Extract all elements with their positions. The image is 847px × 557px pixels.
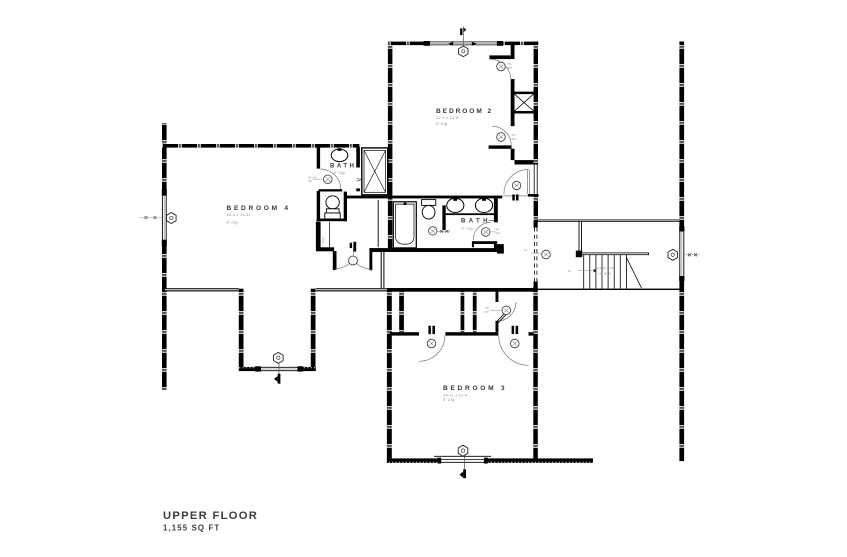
svg-text:linen: linen: [321, 236, 325, 243]
svg-text:8' Clg: 8' Clg: [334, 170, 346, 175]
svg-text:8' Clg: 8' Clg: [462, 225, 474, 230]
svg-text:12T @ 10: 12T @ 10: [598, 272, 611, 276]
svg-text:gfci: gfci: [512, 137, 517, 141]
svg-text:8' Clg: 8' Clg: [436, 121, 448, 126]
svg-text:15-1 x 14-11: 15-1 x 14-11: [227, 212, 252, 217]
svg-text:13R @ 7-3/4: 13R @ 7-3/4: [597, 266, 614, 270]
svg-text:UPPER FLOOR: UPPER FLOOR: [163, 510, 258, 522]
svg-text:sd: sd: [524, 248, 528, 252]
svg-text:BATH: BATH: [330, 163, 357, 169]
svg-text:BATH: BATH: [461, 218, 491, 224]
svg-text:BEDROOM 3: BEDROOM 3: [443, 385, 507, 392]
svg-text:gfci: gfci: [496, 231, 501, 235]
svg-text:8' Clg: 8' Clg: [227, 219, 239, 224]
svg-text:1,155 SQ FT: 1,155 SQ FT: [163, 523, 220, 532]
svg-text:dn: dn: [568, 269, 572, 273]
svg-text:12-6 x 13-6: 12-6 x 13-6: [436, 115, 459, 120]
svg-text:8' Clg: 8' Clg: [443, 397, 455, 402]
svg-text:fan: fan: [308, 179, 313, 183]
svg-text:gfci: gfci: [484, 310, 489, 314]
svg-text:gfci: gfci: [508, 66, 513, 70]
